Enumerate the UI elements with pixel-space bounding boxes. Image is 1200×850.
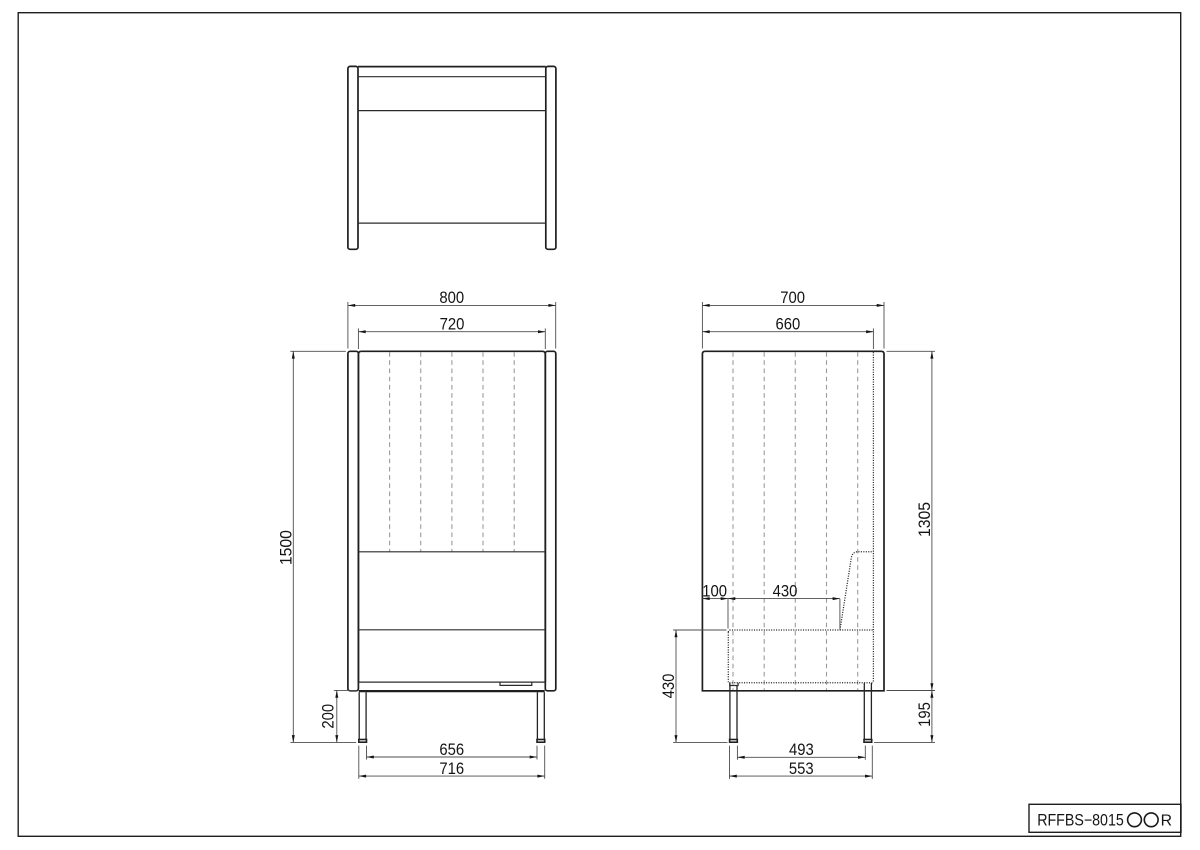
svg-text:1305: 1305 [915, 502, 934, 537]
svg-text:195: 195 [915, 702, 934, 727]
svg-text:716: 716 [439, 759, 464, 778]
svg-text:430: 430 [659, 674, 678, 699]
svg-text:493: 493 [789, 740, 814, 759]
svg-text:100: 100 [702, 581, 727, 600]
svg-text:720: 720 [440, 315, 465, 334]
svg-text:660: 660 [776, 315, 801, 334]
svg-text:700: 700 [780, 288, 805, 307]
svg-text:200: 200 [318, 704, 337, 729]
svg-text:RFFBS−8015: RFFBS−8015 [1037, 811, 1124, 829]
svg-text:R: R [1161, 812, 1172, 829]
svg-text:800: 800 [439, 288, 464, 307]
svg-text:553: 553 [789, 759, 814, 778]
svg-text:656: 656 [439, 740, 464, 759]
svg-text:430: 430 [773, 581, 798, 600]
svg-text:1500: 1500 [277, 530, 296, 565]
